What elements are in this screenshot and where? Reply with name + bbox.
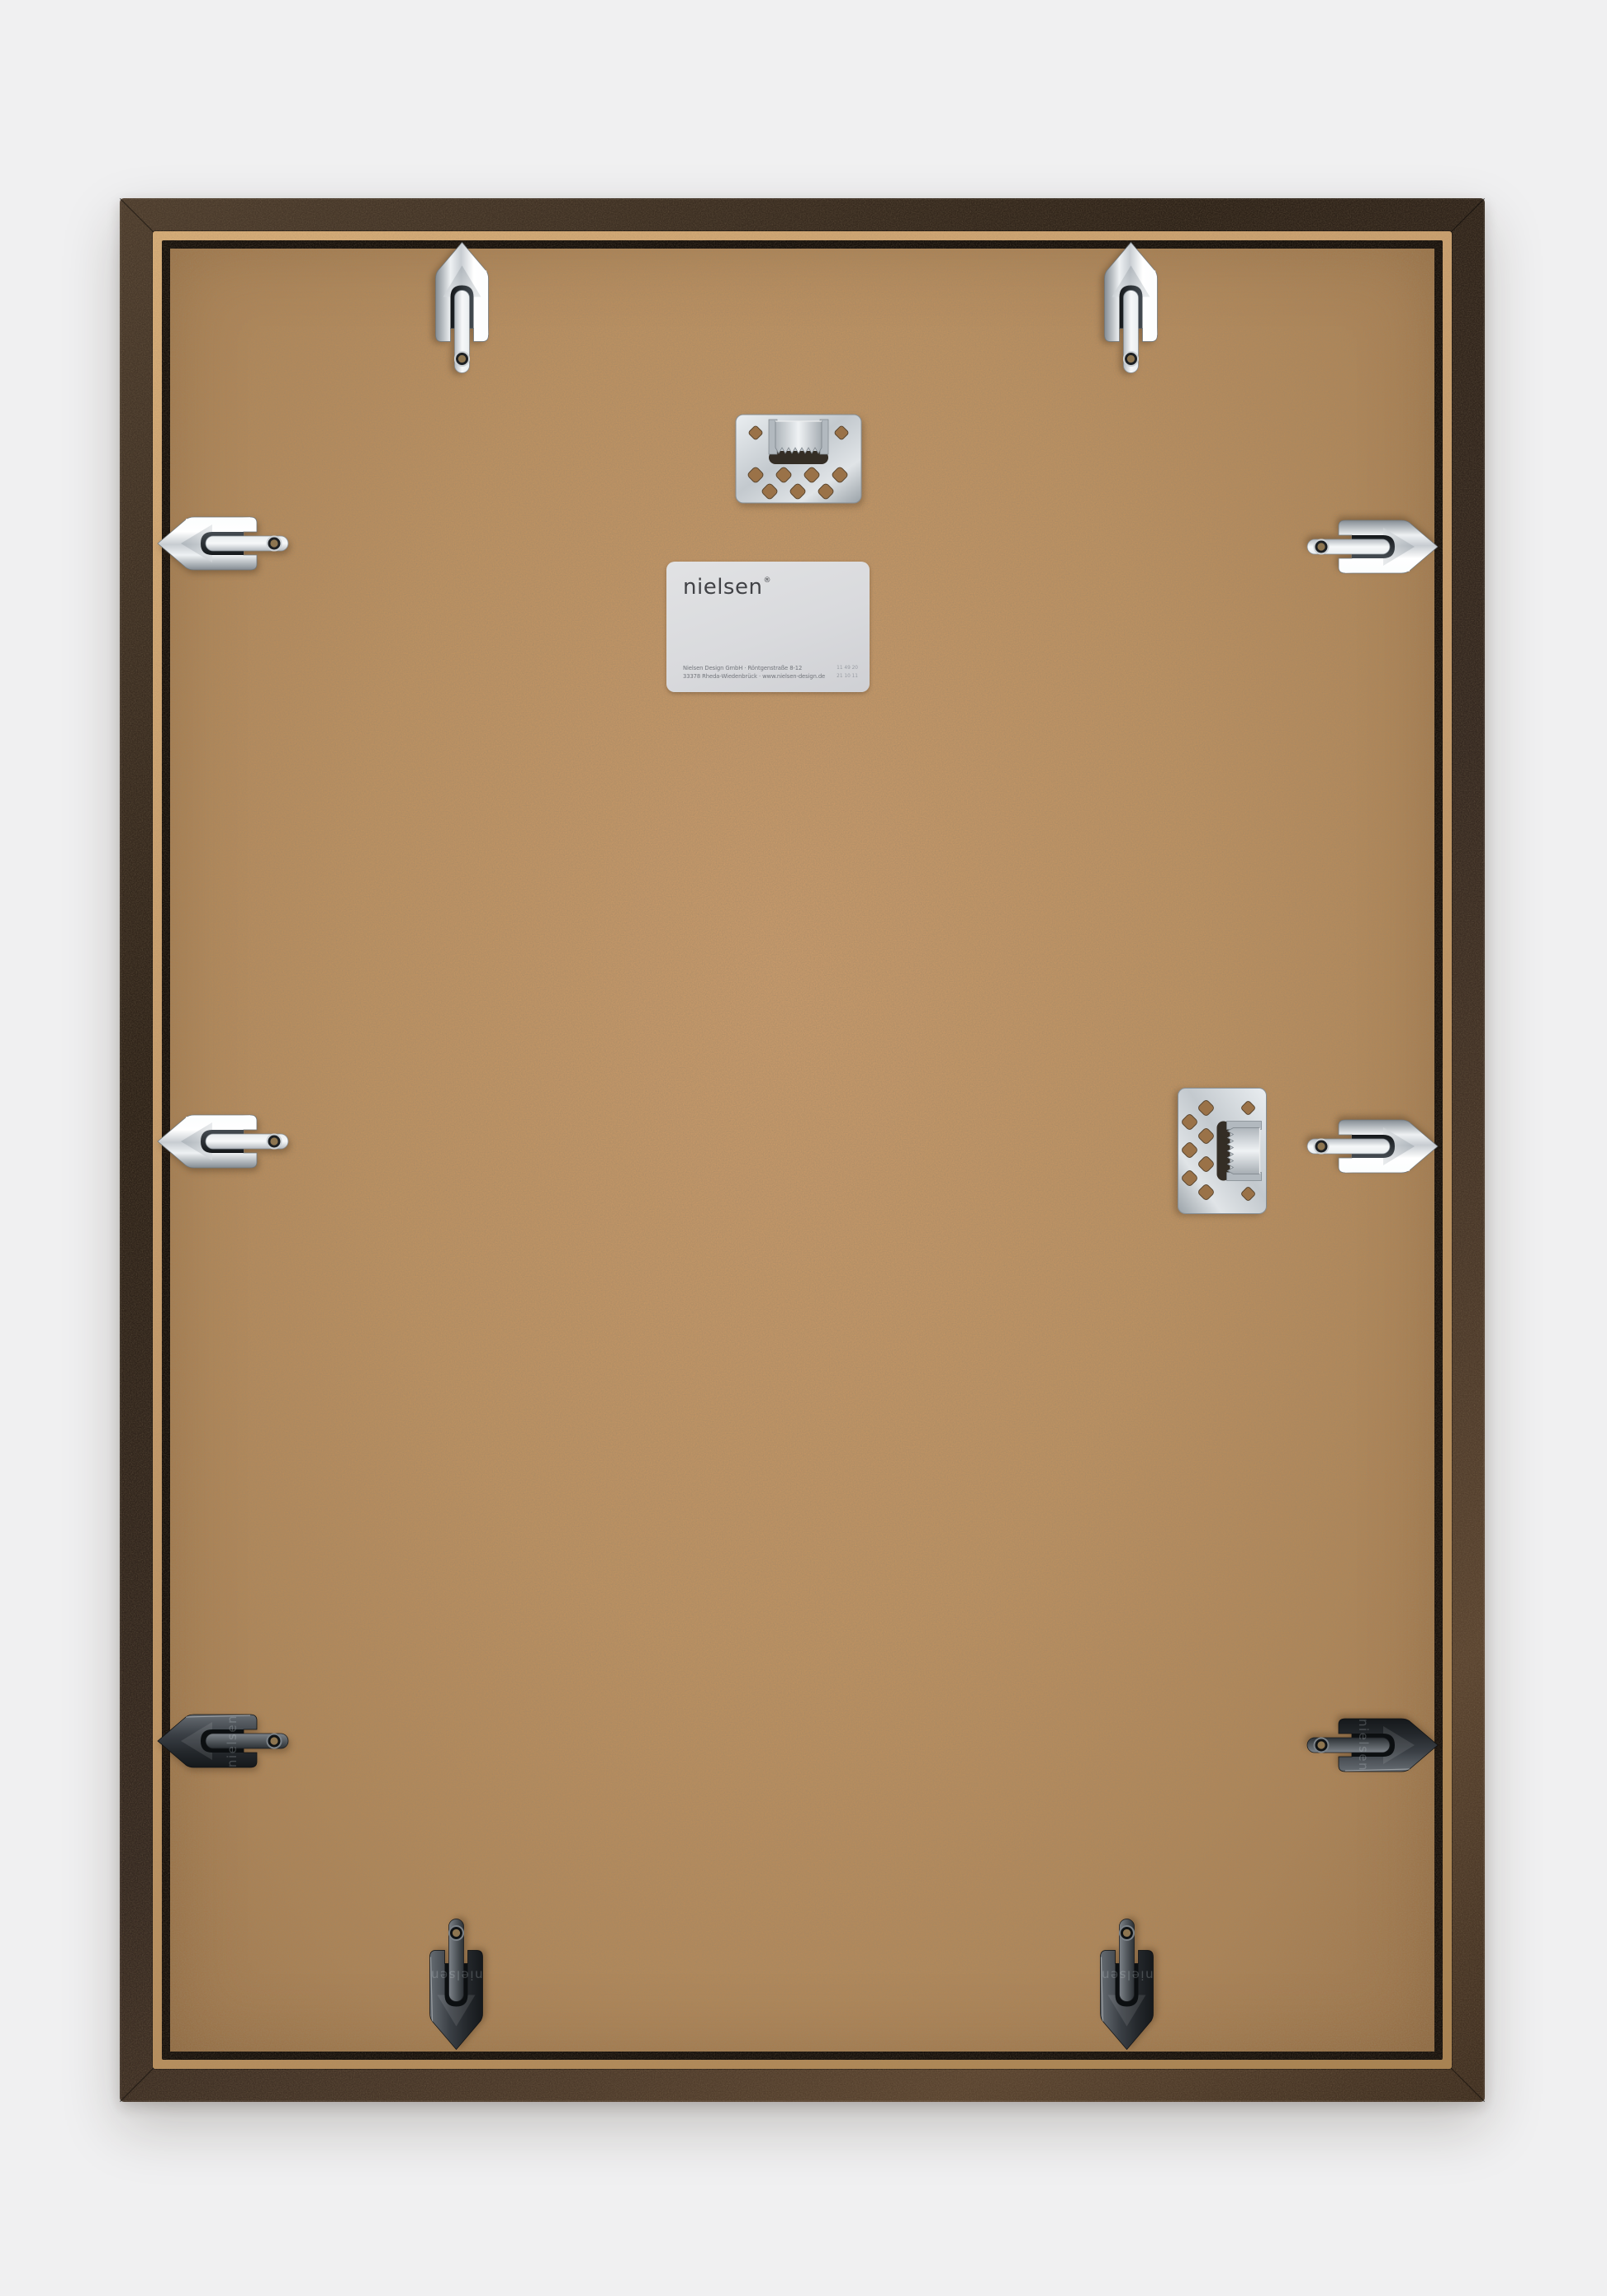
- flex-clip-bottom-right: [1094, 1910, 1160, 2055]
- mitre-joint-top-right: [1451, 198, 1485, 232]
- brand-label: nielsen® Nielsen Design GmbH · Röntgenst…: [666, 562, 870, 692]
- flex-clip-left-lower: [153, 1708, 297, 1774]
- flex-clip-top-right: [1098, 238, 1164, 382]
- registered-trademark-symbol: ®: [763, 576, 771, 585]
- mitre-joint-top-left: [120, 198, 154, 232]
- label-codes: 11 49 20 21 10 11: [837, 665, 858, 681]
- mitre-joint-bottom-right: [1451, 2068, 1485, 2102]
- brand-logo-text: nielsen: [683, 575, 762, 600]
- label-address-line1: Nielsen Design GmbH · Röntgenstraße 8-12: [683, 664, 825, 673]
- flex-clip-bottom-left: [424, 1910, 490, 2055]
- sawtooth-hanger-top: [732, 411, 865, 506]
- flex-clip-right-upper: [1298, 514, 1443, 580]
- flex-clip-right-middle: [1298, 1113, 1443, 1179]
- brand-logo: nielsen®: [683, 575, 771, 600]
- photo-backdrop: nielsen: [0, 0, 1607, 2296]
- flex-clip-left-middle: [153, 1108, 297, 1174]
- flex-clip-right-lower: [1298, 1712, 1443, 1778]
- label-address-line2: 33378 Rheda-Wiedenbrück · www.nielsen-de…: [683, 672, 825, 681]
- label-address: Nielsen Design GmbH · Röntgenstraße 8-12…: [683, 664, 825, 681]
- sawtooth-hanger-right: [1175, 1085, 1270, 1217]
- label-code-line1: 11 49 20: [837, 665, 858, 673]
- mitre-joint-bottom-left: [120, 2068, 154, 2102]
- flex-clip-top-left: [429, 238, 495, 382]
- label-code-line2: 21 10 11: [837, 673, 858, 681]
- flex-clip-left-upper: [153, 510, 297, 576]
